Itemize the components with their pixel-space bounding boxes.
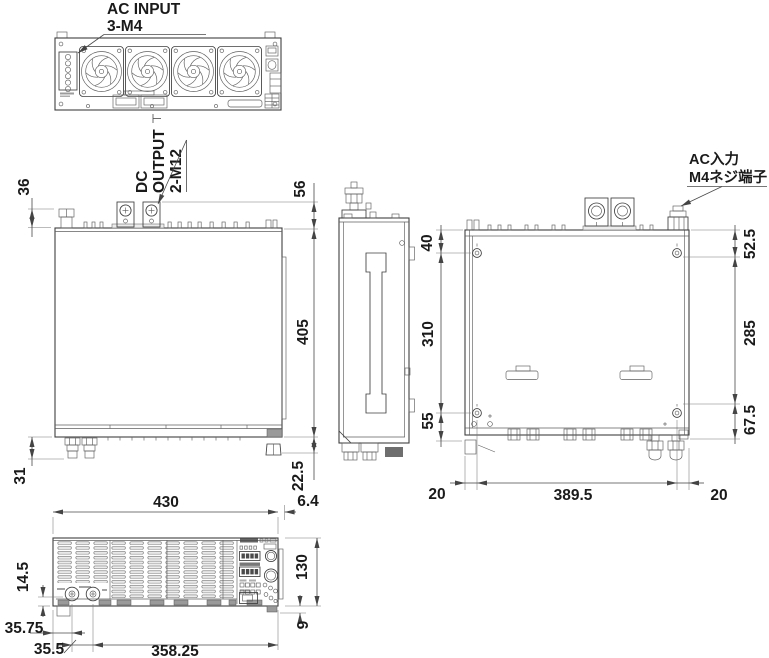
dim-right-rear-offset: 67.5	[742, 405, 759, 436]
rear-connectors	[265, 46, 281, 108]
dim-depth: 405	[295, 319, 312, 345]
plan-view-feet	[65, 438, 281, 458]
bottom-cable-glands	[647, 435, 684, 460]
dim-hole-rear-offset: 55	[420, 412, 437, 430]
bottom-view: AC入力 M4ネジ端子	[465, 150, 768, 460]
ac-input-jp-label: AC入力 M4ネジ端子	[681, 150, 768, 206]
dim-rear-block-height: 36	[16, 178, 33, 196]
dim-front-foot-height: 9	[295, 620, 312, 629]
front-bottom-tabs	[58, 600, 262, 605]
dimension-drawing: AC INPUT 3-M4	[0, 0, 769, 658]
top-edge-details	[59, 209, 277, 228]
dim-hole-pitch-width: 389.5	[554, 487, 593, 504]
dim-front-left-offset: 35.75	[5, 620, 44, 637]
dim-panel-offset: 6.4	[297, 493, 319, 510]
dimension-36: 36	[16, 178, 54, 237]
dim-front-connector-pitch: 35.5	[34, 641, 65, 658]
front-left-foot	[57, 606, 70, 616]
dim-bottom-right-margin: 20	[710, 487, 727, 504]
dimension-drawing-page: AC INPUT 3-M4	[0, 0, 769, 658]
dim-front-connector-height: 14.5	[15, 562, 32, 593]
dimension-9: 9	[280, 595, 312, 629]
rear-busbar-blocks	[113, 91, 167, 108]
front-view	[53, 538, 283, 616]
ac-input-label-line1: AC INPUT	[107, 1, 181, 18]
dc-output-label-line3: 2-M12	[168, 149, 185, 193]
dim-right-foot-height: 22.5	[290, 461, 307, 492]
side-handle-recess	[366, 253, 386, 413]
current-display	[240, 567, 261, 577]
dim-right-front-offset: 52.5	[742, 229, 759, 260]
dimension-chain-depth: 56 405 22.5	[162, 180, 318, 491]
dimension-front-bottom: 35.75 35.5 358.25	[5, 604, 278, 658]
front-side-rail	[279, 549, 283, 599]
mounting-holes	[473, 244, 682, 418]
dim-hole-pitch-depth: 310	[420, 321, 437, 347]
rear-panel-view: AC INPUT 3-M4	[55, 1, 281, 123]
dimension-chain-bottom-width: 20 389.5 20	[428, 420, 727, 504]
top-view: DC OUTPUT 2-M12	[55, 129, 286, 458]
side-dc-terminal	[342, 182, 376, 218]
cooling-fans	[80, 47, 262, 97]
dc-output-label-line1: DC	[134, 171, 151, 193]
dim-bottom-left-margin: 20	[428, 486, 445, 503]
handle-slots	[506, 366, 652, 380]
dim-front-right-span: 358.25	[151, 643, 199, 658]
ac-input-label-line2: 3-M4	[107, 18, 143, 35]
dim-hole-front-offset: 40	[419, 234, 436, 251]
dc-output-label-line2: OUTPUT	[151, 129, 168, 193]
dc-output-terminals	[112, 202, 164, 228]
dimension-chain-bottom-right: 52.5 285 67.5	[683, 225, 759, 444]
dim-left-foot-height: 31	[12, 467, 29, 485]
dimension-130: 130	[285, 538, 321, 606]
dc-output-label: DC OUTPUT 2-M12	[134, 129, 187, 204]
dim-dc-terminal-height: 56	[292, 180, 309, 198]
dimension-31: 31	[12, 437, 64, 485]
side-view-bottom	[339, 431, 405, 460]
ac-input-label: AC INPUT 3-M4	[78, 1, 206, 53]
ac-input-jp-line2: M4ネジ端子	[689, 168, 768, 186]
dimension-chain-bottom-left: 40 310 55	[419, 225, 471, 447]
left-side-view	[339, 182, 415, 460]
ac-terminal-block	[59, 52, 77, 97]
bottom-view-dc-terminals	[583, 198, 636, 230]
voltage-display	[240, 552, 261, 561]
control-panel	[240, 539, 278, 604]
ac-input-jp-line1: AC入力	[689, 150, 739, 168]
datum-mark	[153, 114, 161, 123]
dim-right-mid-span: 285	[742, 320, 759, 346]
dimension-430: 430 6.4	[53, 493, 319, 534]
front-right-foot	[267, 606, 277, 612]
bottom-view-ac-terminal	[668, 206, 688, 230]
dim-front-height: 130	[294, 554, 311, 580]
dim-front-width: 430	[153, 494, 179, 511]
